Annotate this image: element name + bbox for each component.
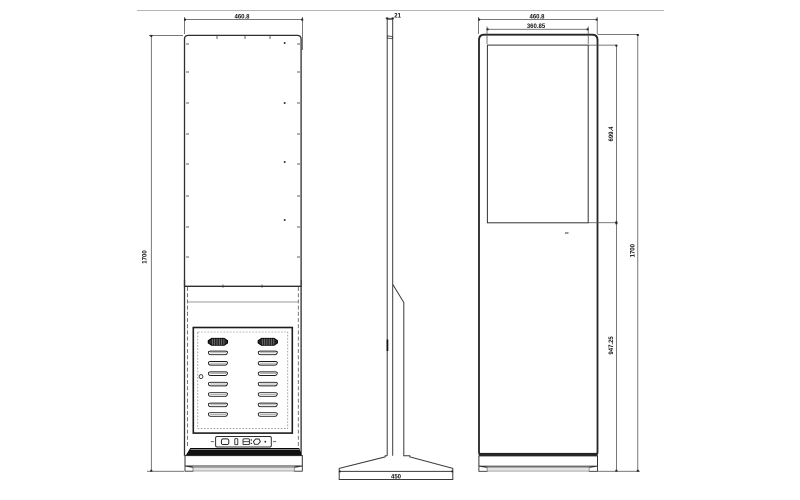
svg-text:699.4: 699.4	[609, 126, 615, 142]
svg-text:460.8: 460.8	[529, 14, 545, 20]
svg-text:460.8: 460.8	[234, 14, 250, 20]
svg-text:450: 450	[391, 474, 402, 480]
svg-text:1700: 1700	[630, 243, 636, 257]
svg-text:947.25: 947.25	[609, 336, 615, 355]
svg-text:21: 21	[394, 14, 401, 20]
svg-text:1700: 1700	[143, 250, 149, 264]
svg-text:360.85: 360.85	[527, 24, 546, 30]
